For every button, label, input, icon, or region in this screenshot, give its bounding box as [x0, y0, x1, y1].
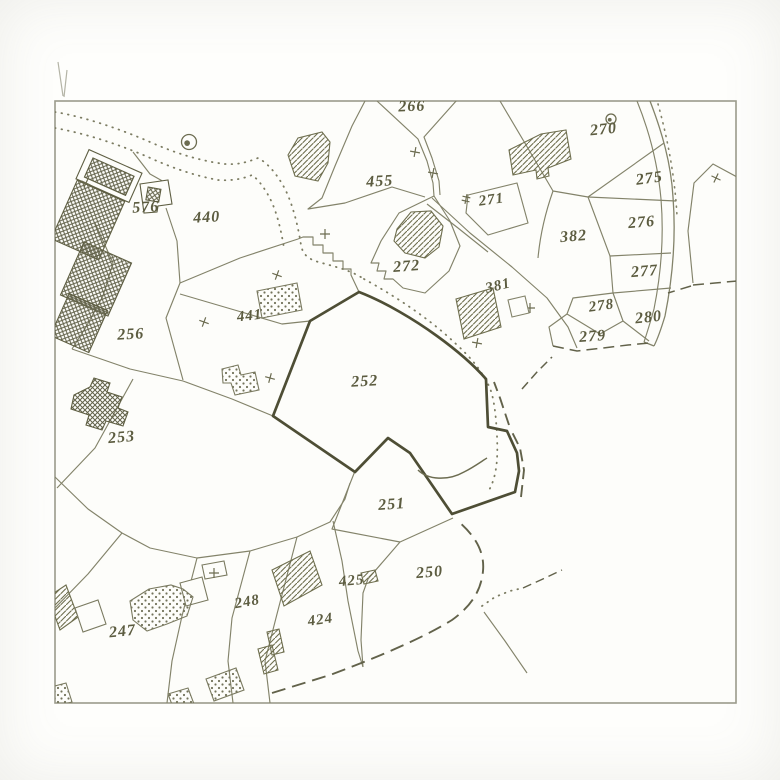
parcel-label-276: 276	[626, 213, 655, 232]
parcel-label-277: 277	[629, 262, 658, 281]
parcel-label-270: 270	[588, 120, 618, 140]
scan-scratch-artifact	[58, 62, 67, 97]
parcel-label-441: 441	[235, 307, 263, 326]
parcel-label-251: 251	[377, 495, 406, 514]
parcel-label-576: 576	[132, 198, 160, 216]
building-381-annex	[508, 296, 529, 317]
parcel-label-256: 256	[116, 325, 145, 343]
building-corner	[40, 683, 72, 709]
parcel-label-455: 455	[365, 172, 394, 190]
parcel-label-440: 440	[192, 208, 221, 226]
map-canvas: 2662704555764402713822752762722773812782…	[0, 0, 780, 780]
parcel-label-247: 247	[107, 622, 137, 642]
parcel-label-250: 250	[414, 563, 443, 582]
parcel-label-280: 280	[633, 308, 663, 328]
parcel-label-279: 279	[578, 327, 607, 346]
parcel-label-252: 252	[350, 372, 379, 390]
parcel-label-382: 382	[558, 227, 587, 246]
parcel-label-253: 253	[106, 428, 135, 447]
well-circle-dot	[184, 140, 190, 146]
parcel-label-425: 425	[337, 572, 365, 590]
parcel-label-272: 272	[392, 257, 421, 276]
scanned-cadastral-map: 2662704555764402713822752762722773812782…	[0, 0, 780, 780]
